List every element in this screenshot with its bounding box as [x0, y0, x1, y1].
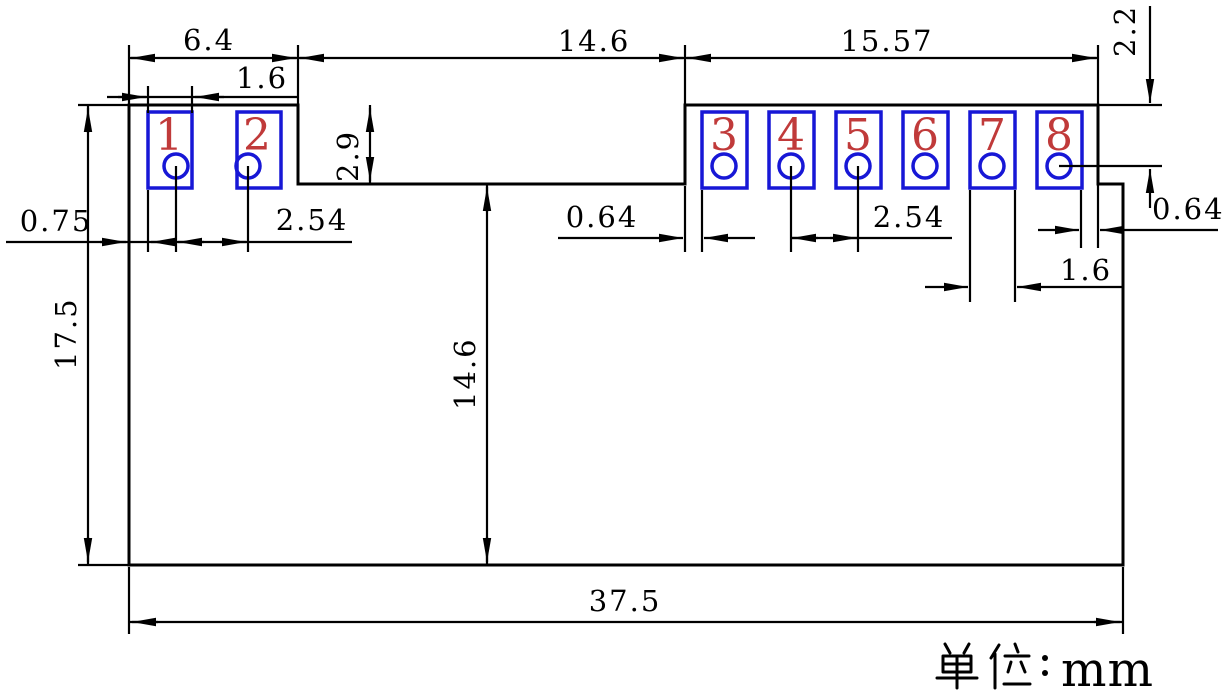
- dim-left-edge-to-pad1: 0.75: [20, 204, 93, 238]
- pad-2-number: 2: [243, 110, 271, 161]
- pad-3: 3: [702, 110, 747, 188]
- dim-tab-edge-to-pad3-gap: 0.64: [566, 200, 639, 234]
- pad-1-number: 1: [155, 110, 183, 161]
- pad-3-number: 3: [710, 110, 738, 161]
- units-mm-text: mm: [1061, 642, 1154, 692]
- units-colon: [1042, 655, 1048, 676]
- dim-overall-width: 37.5: [589, 584, 662, 618]
- dim-overall-height: 17.5: [49, 297, 83, 370]
- pad-4-number: 4: [777, 110, 805, 161]
- module-outline: [129, 105, 1123, 565]
- units-label-cjk-wei: [991, 644, 1030, 688]
- dim-pads-1-2-pitch: 2.54: [276, 203, 349, 237]
- pad-6-number: 6: [911, 110, 939, 161]
- dim-hole-row-offset: 2.2: [1108, 5, 1142, 57]
- pad-5-number: 5: [844, 110, 872, 161]
- dim-pad7-width: 1.6: [1060, 253, 1112, 287]
- dim-lower-body-height: 14.6: [448, 337, 482, 410]
- dim-pad1-width: 1.6: [236, 61, 288, 95]
- dim-pads-4-5-pitch: 2.54: [873, 200, 946, 234]
- dim-top-notch-width: 14.6: [558, 24, 631, 58]
- units-label-cjk-dan: [937, 644, 977, 688]
- dim-right-tab-width: 15.57: [840, 24, 933, 58]
- pad-7: 7: [970, 110, 1015, 188]
- dim-pad8-to-tab-edge-gap: 0.64: [1152, 192, 1225, 226]
- pad-1: 1: [148, 110, 192, 188]
- mechanical-dimension-drawing: 1 2 3 4 5 6 7: [0, 0, 1225, 692]
- pad-7-number: 7: [978, 110, 1006, 161]
- dim-notch-depth: 2.9: [331, 130, 365, 182]
- pad-8-number: 8: [1045, 110, 1073, 161]
- pad-6: 6: [903, 110, 948, 188]
- units-label: mm: [937, 642, 1154, 692]
- pad-2: 2: [236, 110, 281, 188]
- pads: 1 2 3 4 5 6 7: [148, 110, 1082, 188]
- engineering-drawing-svg: 1 2 3 4 5 6 7: [0, 0, 1225, 692]
- dim-left-tab-width: 6.4: [183, 23, 235, 57]
- dimension-arrows: [88, 6, 1218, 622]
- pad-8: 8: [1037, 110, 1082, 188]
- module-outline-path: [129, 105, 1123, 565]
